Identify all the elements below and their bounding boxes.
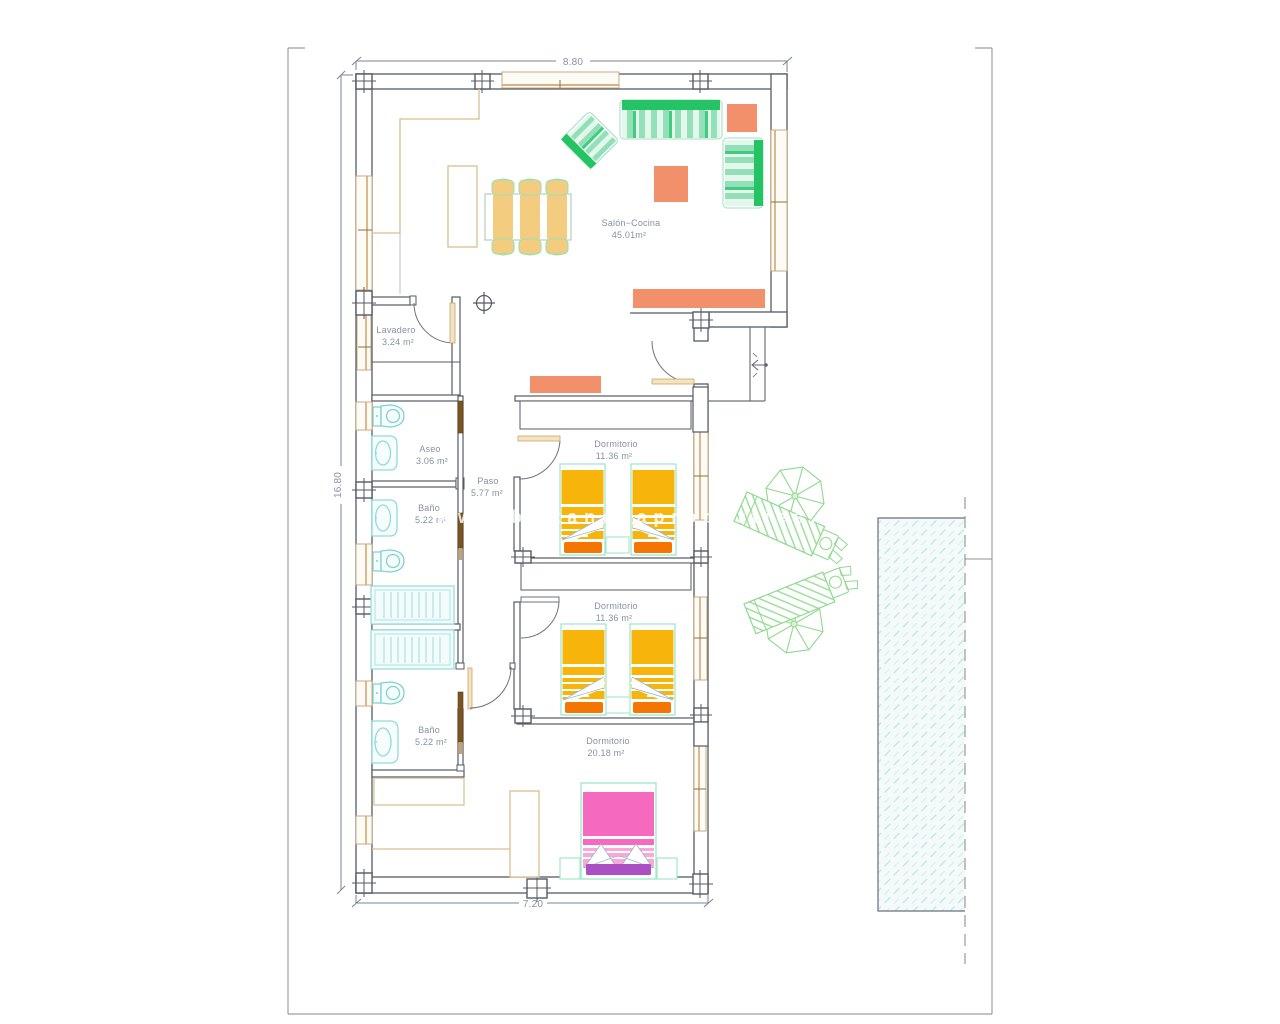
svg-text:16.80: 16.80 <box>333 472 344 498</box>
svg-text:Dormitorio: Dormitorio <box>594 601 638 611</box>
svg-text:3.06 m²: 3.06 m² <box>416 456 448 466</box>
svg-text:5.22 m²: 5.22 m² <box>415 737 447 747</box>
svg-text:7.20: 7.20 <box>523 899 544 910</box>
svg-text:11.36 m²: 11.36 m² <box>596 451 632 461</box>
svg-text:8.80: 8.80 <box>563 57 584 68</box>
svg-text:Aseo: Aseo <box>419 444 440 454</box>
svg-text:45.01m²: 45.01m² <box>612 230 646 240</box>
svg-text:Dormitorio: Dormitorio <box>586 736 630 746</box>
svg-text:Salón−Cocina: Salón−Cocina <box>602 218 661 228</box>
svg-text:Paso: Paso <box>477 476 498 486</box>
svg-text:Dormitorio: Dormitorio <box>594 439 638 449</box>
svg-text:3.24 m²: 3.24 m² <box>382 337 414 347</box>
svg-text:20.18 m²: 20.18 m² <box>587 748 624 758</box>
svg-text:5.77 m²: 5.77 m² <box>471 488 503 498</box>
svg-text:11.36 m²: 11.36 m² <box>596 613 632 623</box>
svg-text:Baño: Baño <box>418 725 440 735</box>
svg-text:Lavadero: Lavadero <box>376 325 415 335</box>
